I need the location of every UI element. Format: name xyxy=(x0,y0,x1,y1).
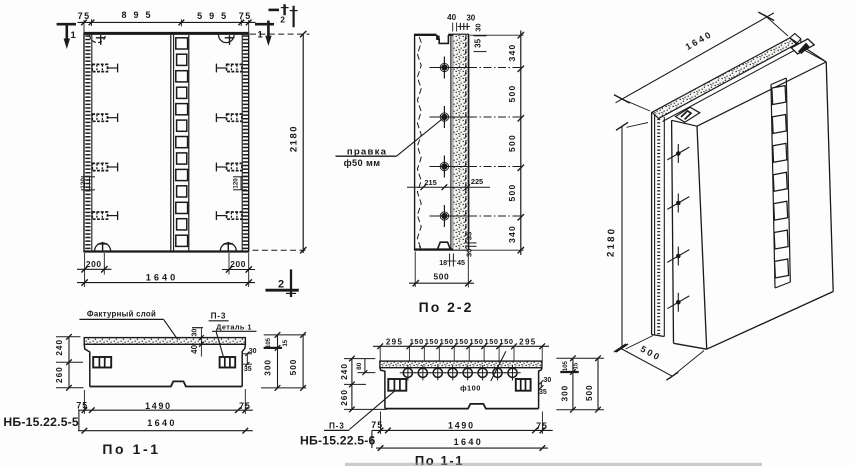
svg-text:260: 260 xyxy=(340,389,349,406)
svg-text:Деталь 1: Деталь 1 xyxy=(216,322,252,331)
svg-text:35: 35 xyxy=(474,38,483,47)
svg-text:260: 260 xyxy=(55,366,64,383)
svg-text:500: 500 xyxy=(289,359,298,376)
svg-text:150: 150 xyxy=(440,337,454,346)
svg-text:895: 895 xyxy=(121,10,157,20)
svg-text:240: 240 xyxy=(340,363,349,380)
svg-text:1490: 1490 xyxy=(448,421,475,431)
svg-text:40: 40 xyxy=(190,344,199,353)
svg-text:НБ-15.22.5-6: НБ-15.22.5-6 xyxy=(300,433,376,447)
svg-text:2180: 2180 xyxy=(605,227,617,258)
svg-text:340: 340 xyxy=(507,44,517,62)
svg-text:30: 30 xyxy=(249,348,257,355)
svg-text:75: 75 xyxy=(239,401,251,411)
svg-text:500: 500 xyxy=(507,134,517,152)
svg-text:75: 75 xyxy=(78,11,91,21)
svg-text:П-3: П-3 xyxy=(329,422,345,431)
svg-text:30: 30 xyxy=(473,23,482,31)
svg-text:300: 300 xyxy=(263,359,272,376)
svg-text:35: 35 xyxy=(244,366,252,373)
svg-text:ф100: ф100 xyxy=(460,383,481,392)
svg-text:1: 1 xyxy=(258,30,264,41)
svg-text:15: 15 xyxy=(573,362,579,369)
svg-text:1640: 1640 xyxy=(684,29,715,52)
svg-text:30: 30 xyxy=(464,249,473,257)
svg-text:105: 105 xyxy=(266,337,272,348)
svg-text:500: 500 xyxy=(434,272,450,282)
svg-text:30: 30 xyxy=(544,377,552,384)
svg-text:225: 225 xyxy=(471,177,483,186)
svg-text:595: 595 xyxy=(197,11,233,21)
svg-text:500: 500 xyxy=(507,184,517,202)
svg-text:150: 150 xyxy=(485,337,499,346)
svg-text:30: 30 xyxy=(192,329,199,337)
svg-text:2180: 2180 xyxy=(288,125,299,152)
svg-text:2: 2 xyxy=(280,15,285,25)
svg-text:150: 150 xyxy=(410,337,424,346)
svg-text:35: 35 xyxy=(464,231,473,240)
svg-text:75: 75 xyxy=(76,401,88,411)
svg-text:75: 75 xyxy=(239,11,252,21)
svg-text:2: 2 xyxy=(278,279,284,291)
svg-text:30: 30 xyxy=(466,14,475,23)
svg-text:1: 1 xyxy=(71,30,77,41)
svg-text:200: 200 xyxy=(86,259,102,269)
svg-text:120: 120 xyxy=(233,178,240,189)
svg-text:18: 18 xyxy=(439,258,447,267)
svg-text:200: 200 xyxy=(230,259,246,269)
svg-text:НБ-15.22.5-5: НБ-15.22.5-5 xyxy=(3,415,79,429)
svg-text:75: 75 xyxy=(371,420,383,430)
svg-text:40: 40 xyxy=(447,13,456,22)
svg-text:300: 300 xyxy=(560,385,569,402)
svg-text:1640: 1640 xyxy=(454,437,484,447)
svg-text:150: 150 xyxy=(425,337,439,346)
svg-text:150: 150 xyxy=(499,337,513,346)
svg-text:120: 120 xyxy=(80,178,87,189)
svg-text:295: 295 xyxy=(386,337,404,346)
svg-text:1640: 1640 xyxy=(146,273,178,283)
svg-text:240: 240 xyxy=(55,339,64,356)
svg-text:500: 500 xyxy=(585,384,594,401)
svg-text:П-3: П-3 xyxy=(211,312,227,321)
svg-text:1490: 1490 xyxy=(145,401,172,411)
svg-text:150: 150 xyxy=(455,337,469,346)
svg-text:ф50 мм: ф50 мм xyxy=(344,158,381,168)
svg-text:295: 295 xyxy=(519,338,537,347)
svg-text:15: 15 xyxy=(283,339,289,346)
svg-text:35: 35 xyxy=(539,389,547,396)
svg-text:1640: 1640 xyxy=(147,418,177,428)
svg-text:По 1-1: По 1-1 xyxy=(102,441,160,457)
svg-text:45: 45 xyxy=(457,258,465,267)
svg-text:105: 105 xyxy=(563,360,569,371)
svg-text:80: 80 xyxy=(356,362,363,370)
svg-text:75: 75 xyxy=(536,421,548,431)
svg-text:По 2-2: По 2-2 xyxy=(419,299,474,315)
svg-text:215: 215 xyxy=(424,178,436,187)
svg-text:150: 150 xyxy=(470,337,484,346)
svg-text:340: 340 xyxy=(507,225,517,243)
svg-text:500: 500 xyxy=(507,85,517,103)
svg-text:Фактурный слой: Фактурный слой xyxy=(87,310,156,319)
